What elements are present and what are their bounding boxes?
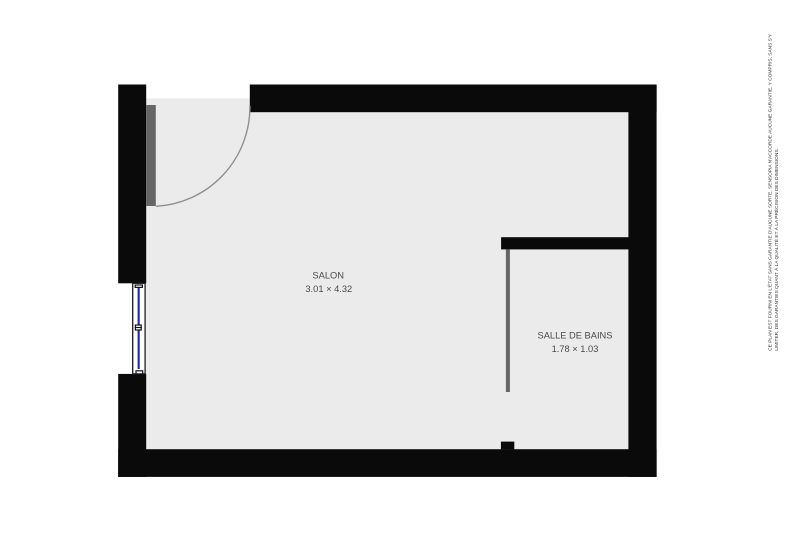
svg-text:SALON: SALON (312, 271, 344, 281)
svg-text:1.78 × 1.03: 1.78 × 1.03 (552, 344, 599, 354)
svg-text:LIMITER, DES GARANTIES QUANT À: LIMITER, DES GARANTIES QUANT À LA QUALIT… (773, 148, 780, 351)
svg-text:SALLE DE BAINS: SALLE DE BAINS (538, 331, 613, 341)
svg-text:3.01 × 4.32: 3.01 × 4.32 (305, 284, 352, 294)
svg-text:CE PLAN EST FOURNI EN L'ÉTAT S: CE PLAN EST FOURNI EN L'ÉTAT SANS GARANT… (767, 33, 774, 351)
